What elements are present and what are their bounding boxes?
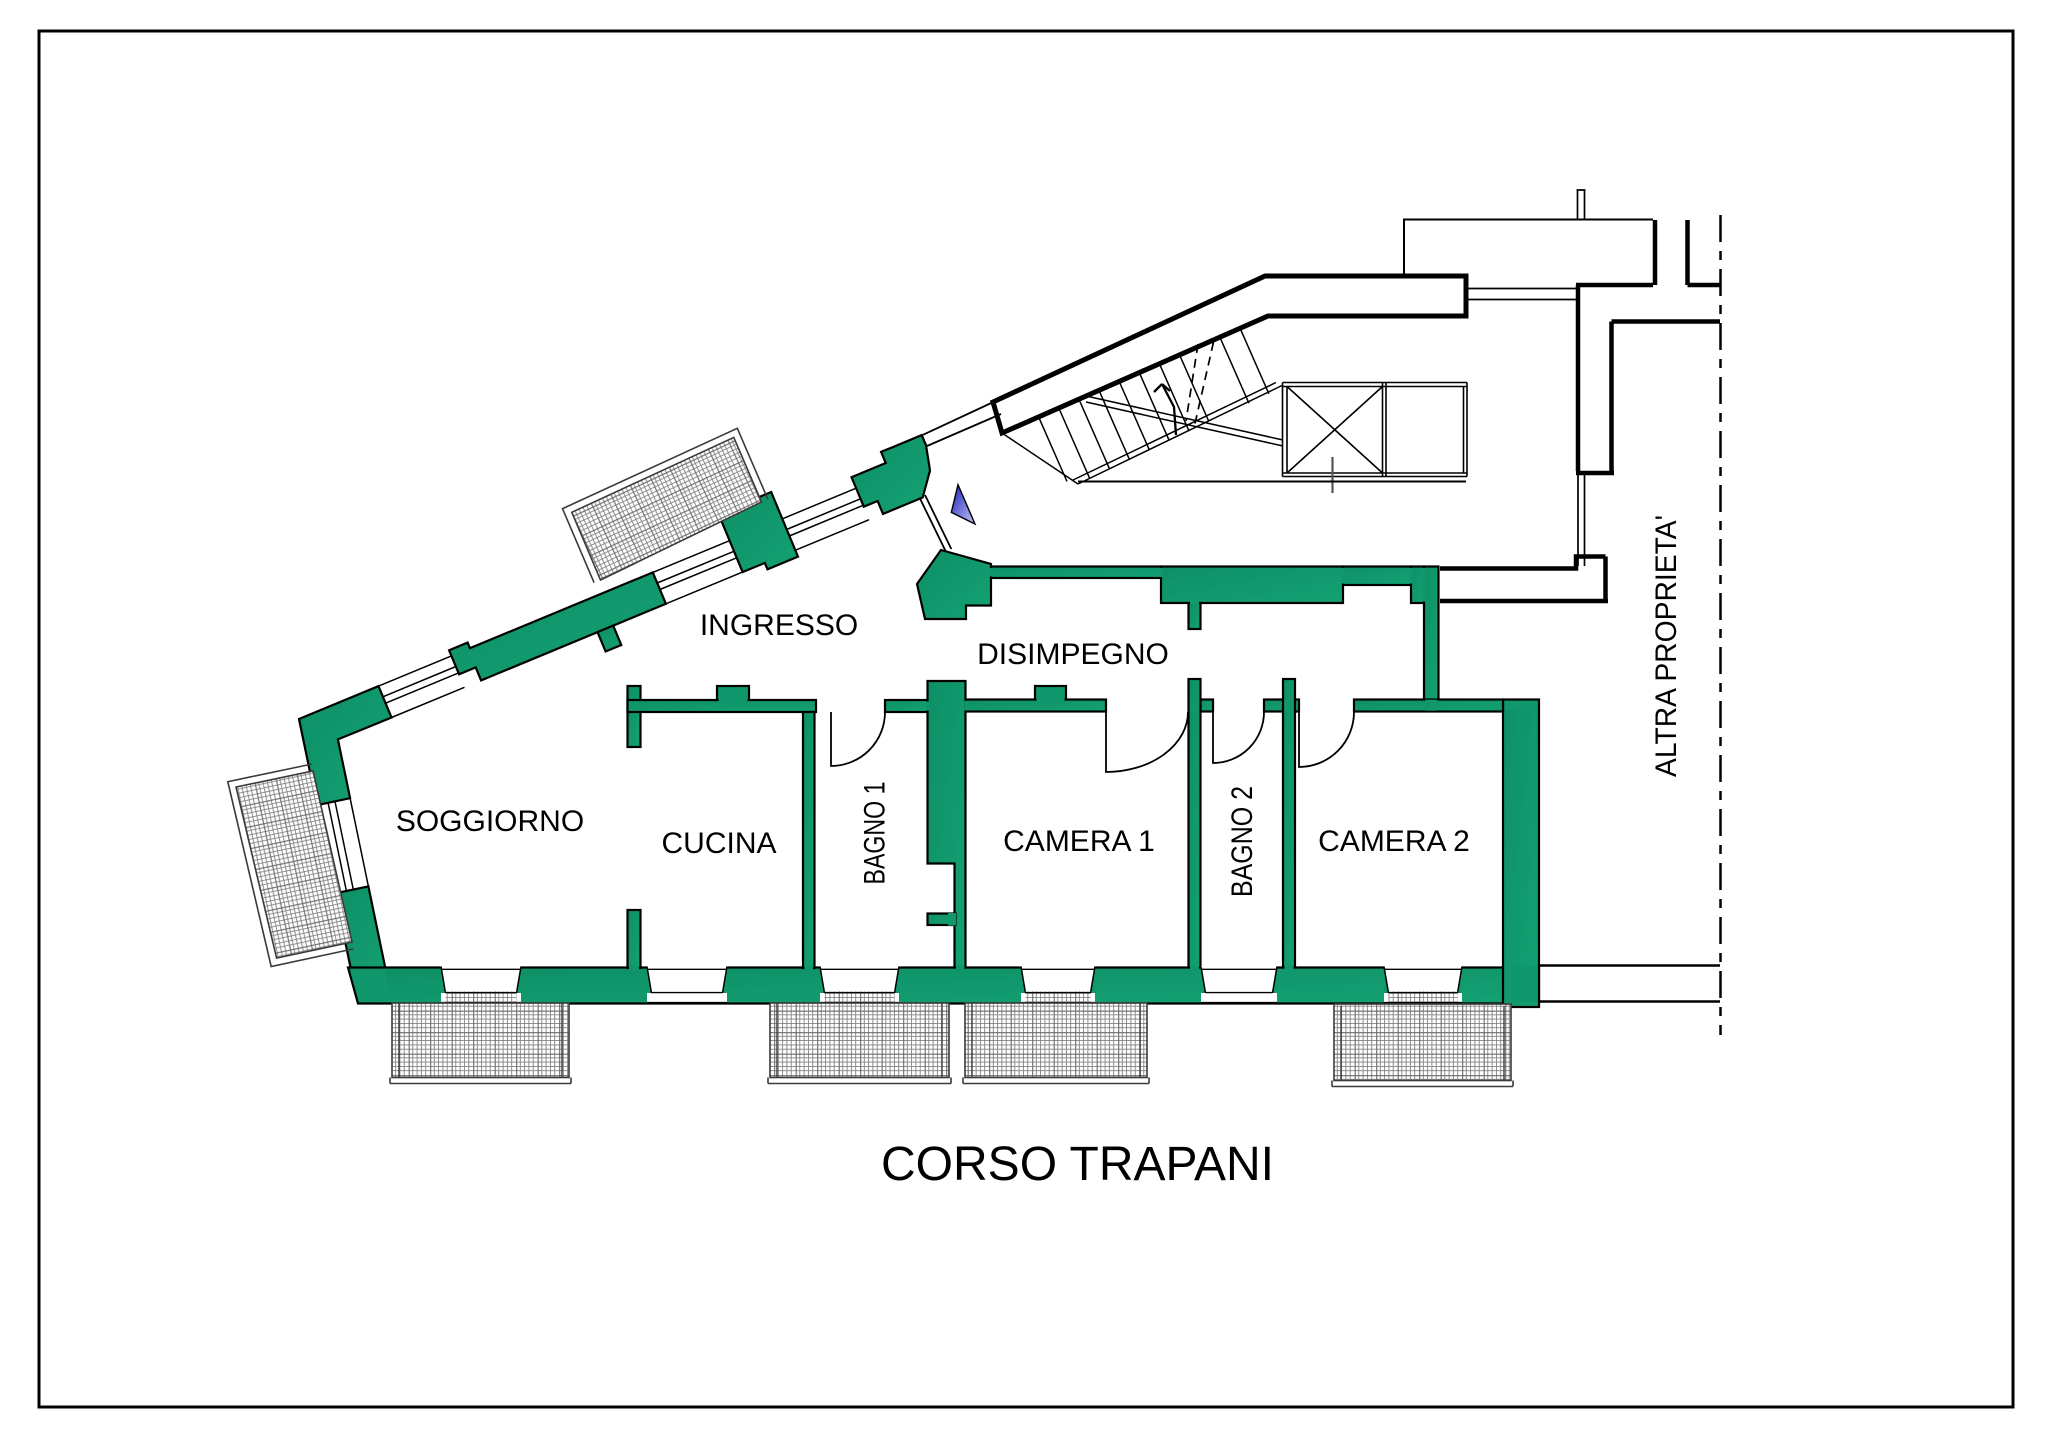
- svg-text:BAGNO 2: BAGNO 2: [1226, 786, 1259, 897]
- svg-text:CUCINA: CUCINA: [661, 827, 776, 860]
- svg-text:CAMERA 2: CAMERA 2: [1318, 825, 1470, 858]
- svg-text:BAGNO 1: BAGNO 1: [859, 782, 892, 885]
- svg-text:SOGGIORNO: SOGGIORNO: [396, 805, 584, 838]
- svg-text:DISIMPEGNO: DISIMPEGNO: [977, 638, 1169, 671]
- svg-text:ALTRA PROPRIETA': ALTRA PROPRIETA': [1650, 515, 1683, 777]
- svg-text:CAMERA 1: CAMERA 1: [1003, 825, 1155, 858]
- svg-text:CORSO TRAPANI: CORSO TRAPANI: [881, 1138, 1274, 1191]
- svg-text:INGRESSO: INGRESSO: [700, 609, 858, 642]
